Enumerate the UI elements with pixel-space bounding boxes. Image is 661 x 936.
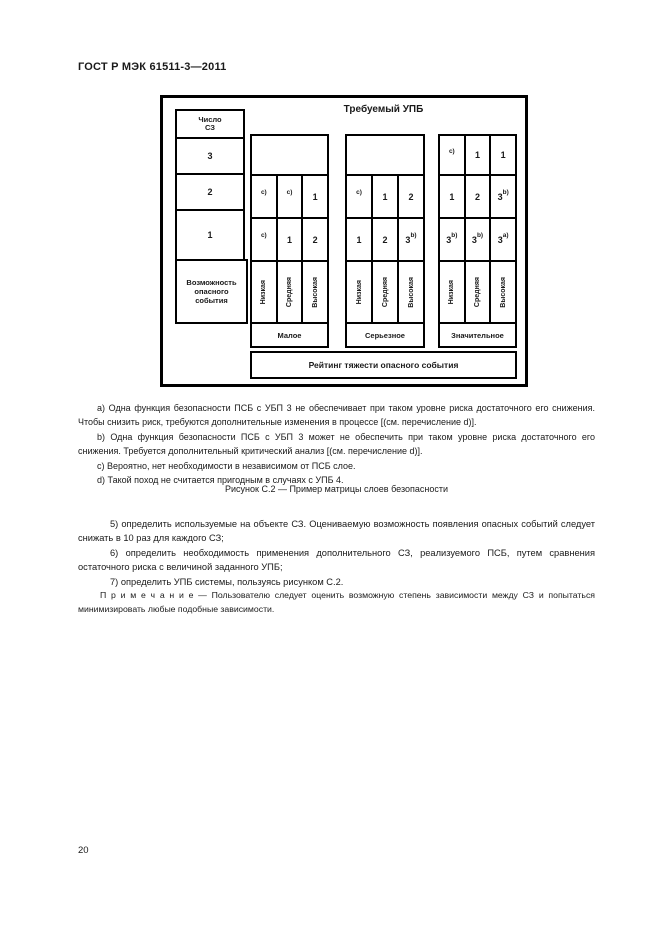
likelihood-level-label: Высокая: [312, 277, 319, 308]
matrix-cell: 1: [373, 176, 399, 217]
matrix-cell: 1: [347, 219, 373, 260]
matrix-row-blank: [252, 136, 327, 176]
likelihood-level-cell: Высокая: [399, 262, 423, 322]
footnote-a: a) Одна функция безопасности ПСБ с УБП 3…: [78, 401, 595, 430]
footnote-b: b) Одна функция безопасности ПСБ с УБП 3…: [78, 430, 595, 459]
matrix-cell: 3a): [491, 219, 515, 260]
layer-count-cell: 3: [175, 137, 245, 175]
matrix-cell: c): [252, 176, 278, 217]
layer-count-cell: 1: [175, 209, 245, 261]
matrix-cell: c): [278, 176, 304, 217]
severity-axis-label: Рейтинг тяжести опасного события: [250, 351, 517, 379]
matrix-row: 1 2 3b): [347, 219, 423, 262]
matrix-cell: 2: [303, 219, 327, 260]
likelihood-level-label: Низкая: [260, 280, 267, 304]
matrix-cell: 2: [466, 176, 492, 217]
matrix-row: 3b) 3b) 3a): [440, 219, 515, 262]
severity-title-serious: Серьезное: [345, 322, 425, 348]
matrix-cell: c): [440, 136, 466, 174]
matrix-row: c) 1 2: [347, 176, 423, 219]
likelihood-level-cell: Средняя: [466, 262, 492, 322]
likelihood-level-cell: Высокая: [303, 262, 327, 322]
matrix-row: c) c) 1: [252, 176, 327, 219]
figure-title-required-sil: Требуемый УПБ: [250, 104, 517, 115]
page-number: 20: [78, 845, 89, 856]
document-header: ГОСТ Р МЭК 61511-3—2011: [78, 61, 226, 73]
document-page: ГОСТ Р МЭК 61511-3—2011 Требуемый УПБ Чи…: [0, 0, 661, 936]
note-paragraph: П р и м е ч а н и е — Пользователю следу…: [78, 588, 595, 616]
matrix-cell: 3b): [466, 219, 492, 260]
likelihood-level-label: Средняя: [382, 277, 389, 307]
num-layers-header: Число СЗ: [175, 109, 245, 139]
severity-group-extensive: c) 1 1 1 2 3b) 3b) 3b) 3a) Низкая Средня…: [438, 134, 517, 324]
likelihood-level-cell: Низкая: [252, 262, 278, 322]
matrix-cell: 3b): [491, 176, 515, 217]
likelihood-level-label: Низкая: [448, 280, 455, 304]
matrix-cell: 1: [466, 136, 492, 174]
matrix-row: c) 1 2: [252, 219, 327, 262]
likelihood-labels-row: Низкая Средняя Высокая: [440, 262, 515, 322]
matrix-row: 1 2 3b): [440, 176, 515, 219]
matrix-row: c) 1 1: [440, 136, 515, 176]
figure-c2-diagram: Требуемый УПБ Число СЗ 3 2 1 Возможность…: [160, 95, 528, 387]
severity-title-minor: Малое: [250, 322, 329, 348]
matrix-cell: 2: [399, 176, 423, 217]
likelihood-labels-row: Низкая Средняя Высокая: [252, 262, 327, 322]
severity-group-minor: c) c) 1 c) 1 2 Низкая Средняя Высокая: [250, 134, 329, 324]
matrix-cell: 3b): [440, 219, 466, 260]
matrix-cell: 1: [303, 176, 327, 217]
likelihood-labels-row: Низкая Средняя Высокая: [347, 262, 423, 322]
severity-title-extensive: Значительное: [438, 322, 517, 348]
matrix-cell: 1: [491, 136, 515, 174]
likelihood-level-label: Средняя: [286, 277, 293, 307]
figure-footnotes: a) Одна функция безопасности ПСБ с УБП 3…: [78, 401, 595, 487]
layer-count-cell: 2: [175, 173, 245, 211]
num-layers-column: Число СЗ 3 2 1: [175, 109, 245, 261]
likelihood-level-label: Высокая: [408, 277, 415, 308]
list-item-6: 6) определить необходимость применения д…: [78, 546, 595, 575]
likelihood-level-label: Высокая: [500, 277, 507, 308]
list-item-7: 7) определить УПБ системы, пользуясь рис…: [78, 575, 595, 589]
severity-group-serious: c) 1 2 1 2 3b) Низкая Средняя Высокая: [345, 134, 425, 324]
matrix-cell: 1: [440, 176, 466, 217]
matrix-cell: 3b): [399, 219, 423, 260]
matrix-cell: c): [347, 176, 373, 217]
footnote-c: c) Вероятно, нет необходимости в независ…: [78, 459, 595, 473]
likelihood-level-cell: Высокая: [491, 262, 515, 322]
figure-caption: Рисунок С.2 — Пример матрицы слоев безоп…: [78, 484, 595, 494]
numbered-list: 5) определить используемые на объекте СЗ…: [78, 517, 595, 589]
num-layers-header-line2: СЗ: [205, 124, 215, 133]
likelihood-axis-label: Возможность опасного события: [175, 259, 248, 324]
matrix-row-blank: [347, 136, 423, 176]
likelihood-level-cell: Средняя: [278, 262, 304, 322]
matrix-cell: c): [252, 219, 278, 260]
matrix-cell: 2: [373, 219, 399, 260]
likelihood-level-cell: Низкая: [347, 262, 373, 322]
likelihood-level-cell: Средняя: [373, 262, 399, 322]
likelihood-level-label: Средняя: [474, 277, 481, 307]
likelihood-level-label: Низкая: [356, 280, 363, 304]
list-item-5: 5) определить используемые на объекте СЗ…: [78, 517, 595, 546]
likelihood-level-cell: Низкая: [440, 262, 466, 322]
matrix-cell: 1: [278, 219, 304, 260]
